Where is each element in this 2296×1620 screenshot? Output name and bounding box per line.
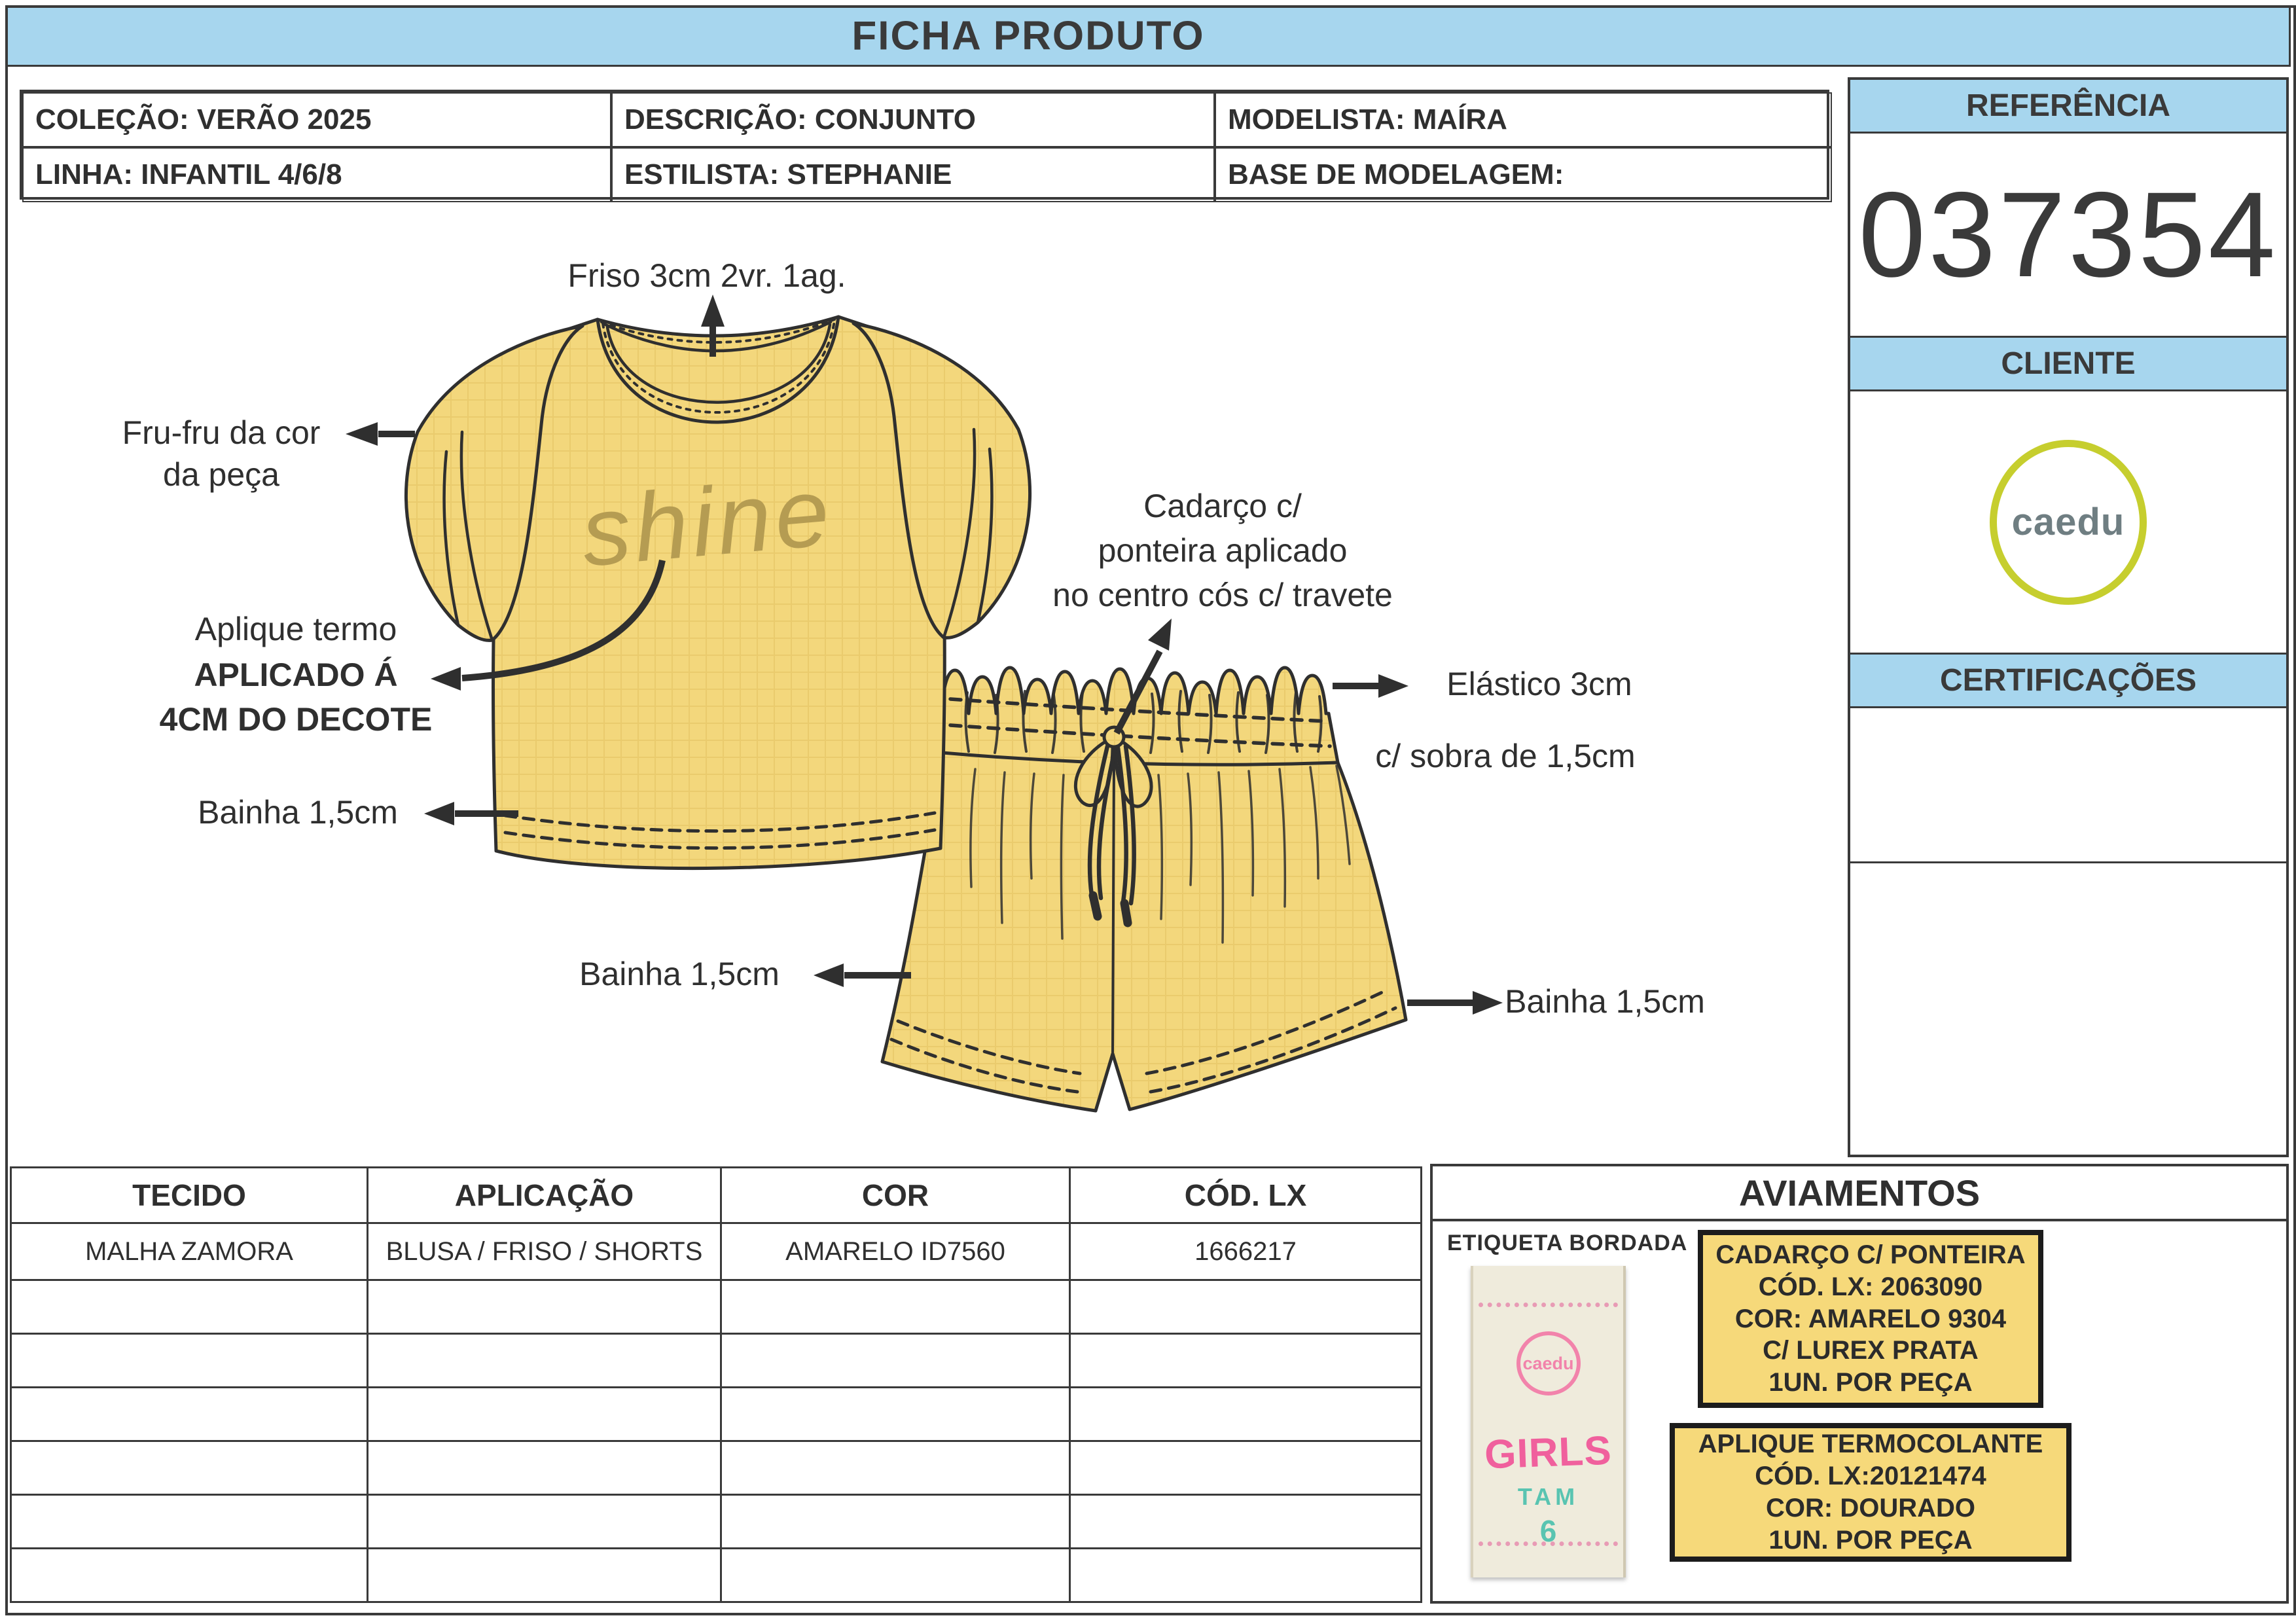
annotation-bainha-shorts-dir: Bainha 1,5cm xyxy=(1505,983,1705,1020)
annotation-aplique-line3: 4CM DO DECOTE xyxy=(160,701,433,738)
trim2-line: APLIQUE TERMOCOLANTE xyxy=(1698,1428,2043,1460)
shorts-body xyxy=(882,753,1406,1111)
cell-codlx: 1666217 xyxy=(1070,1223,1422,1280)
annotation-aplique-line1: Aplique termo xyxy=(195,611,397,647)
brand-tag: caedu GIRLS TAM 6 xyxy=(1471,1266,1626,1577)
cliente-box: caedu xyxy=(1850,391,2286,655)
annotation-friso: Friso 3cm 2vr. 1ag. xyxy=(567,257,846,294)
table-row: MALHA ZAMORA BLUSA / FRISO / SHORTS AMAR… xyxy=(11,1223,1422,1280)
annotation-aplique-line2: APLICADO Á xyxy=(194,657,397,693)
tag-dotted-line xyxy=(1479,1303,1618,1307)
cell-cor xyxy=(721,1495,1070,1549)
trim1-line: CÓD. LX: 2063090 xyxy=(1759,1271,1982,1303)
table-row xyxy=(11,1495,1422,1549)
aplique-arrowhead-icon xyxy=(431,667,461,691)
trim2-line: 1UN. POR PEÇA xyxy=(1768,1524,1972,1557)
cell-tecido xyxy=(11,1441,368,1495)
col-header-aplicacao: APLICAÇÃO xyxy=(368,1168,721,1223)
info-colecao: COLEÇÃO: VERÃO 2025 xyxy=(22,92,611,147)
cell-aplicacao xyxy=(368,1441,721,1495)
cell-aplicacao xyxy=(368,1549,721,1602)
caedu-logo-text: caedu xyxy=(2012,500,2125,544)
shine-graphic: shine xyxy=(577,458,837,587)
caedu-logo: caedu xyxy=(1990,440,2147,605)
frufru-arrowhead-icon xyxy=(346,422,378,446)
shorts-center-seam xyxy=(1113,763,1114,1053)
aviamentos-panel: AVIAMENTOS ETIQUETA BORDADA caedu GIRLS … xyxy=(1430,1164,2289,1604)
info-modelista: MODELISTA: MAÍRA xyxy=(1215,92,1832,147)
cell-tecido xyxy=(11,1549,368,1602)
bainha-dir-arrowhead-icon xyxy=(1473,991,1503,1015)
cell-codlx xyxy=(1070,1388,1422,1441)
tag-caedu-text: caedu xyxy=(1522,1354,1573,1374)
cell-aplicacao xyxy=(368,1280,721,1334)
cell-tecido xyxy=(11,1334,368,1388)
annotation-elastico-line2: c/ sobra de 1,5cm xyxy=(1375,738,1635,774)
info-table: COLEÇÃO: VERÃO 2025 DESCRIÇÃO: CONJUNTO … xyxy=(20,90,1829,200)
table-row xyxy=(11,1441,1422,1495)
certificacoes-header: CERTIFICAÇÕES xyxy=(1850,655,2286,708)
annotation-cadarco-line2: ponteira aplicado xyxy=(1098,532,1348,569)
cell-tecido xyxy=(11,1388,368,1441)
ficha-produto-sheet: shine Friso 3cm 2vr. 1ag. Fru-fru da cor… xyxy=(0,0,2296,1620)
annotation-cadarco-line3: no centro cós c/ travete xyxy=(1052,577,1393,613)
cell-tecido xyxy=(11,1495,368,1549)
trim2-line: CÓD. LX:20121474 xyxy=(1755,1460,1986,1492)
materials-table: TECIDO APLICAÇÃO COR CÓD. LX MALHA ZAMOR… xyxy=(10,1166,1422,1603)
cell-cor xyxy=(721,1334,1070,1388)
cell-cor xyxy=(721,1280,1070,1334)
tag-girls-text: GIRLS xyxy=(1473,1427,1624,1479)
etiqueta-bordada-label: ETIQUETA BORDADA xyxy=(1447,1231,1687,1256)
trim2-line: COR: DOURADO xyxy=(1766,1492,1975,1524)
col-header-codlx: CÓD. LX xyxy=(1070,1168,1422,1223)
tshirt-body xyxy=(493,317,945,869)
friso-arrowhead-icon xyxy=(701,295,725,327)
bainha-esq-arrowhead-icon xyxy=(814,963,844,987)
cell-cor xyxy=(721,1549,1070,1602)
cell-aplicacao xyxy=(368,1388,721,1441)
cell-codlx xyxy=(1070,1495,1422,1549)
referencia-header: REFERÊNCIA xyxy=(1850,80,2286,134)
table-row xyxy=(11,1388,1422,1441)
cell-codlx xyxy=(1070,1334,1422,1388)
cell-codlx xyxy=(1070,1549,1422,1602)
cell-codlx xyxy=(1070,1441,1422,1495)
tag-tam-text: TAM xyxy=(1473,1483,1623,1511)
elastico-arrowhead-icon xyxy=(1378,674,1408,698)
cell-tecido xyxy=(11,1280,368,1334)
cliente-header: CLIENTE xyxy=(1850,338,2286,391)
sidebar: REFERÊNCIA 037354 CLIENTE caedu CERTIFIC… xyxy=(1848,77,2289,1157)
cadarco-arrowhead-icon xyxy=(1148,619,1172,651)
annotation-elastico-line1: Elástico 3cm xyxy=(1446,666,1632,702)
shorts-drawing xyxy=(882,668,1406,1111)
trim-box-cadarco: CADARÇO C/ PONTEIRA CÓD. LX: 2063090 COR… xyxy=(1698,1230,2043,1408)
trim1-line: CADARÇO C/ PONTEIRA xyxy=(1715,1239,2025,1271)
col-header-cor: COR xyxy=(721,1168,1070,1223)
col-header-tecido: TECIDO xyxy=(11,1168,368,1223)
trim1-line: C/ LUREX PRATA xyxy=(1763,1335,1979,1367)
header-bar: FICHA PRODUTO xyxy=(5,5,2291,67)
table-row xyxy=(11,1334,1422,1388)
certificacoes-box-1 xyxy=(1850,708,2286,863)
tag-caedu-logo: caedu xyxy=(1516,1331,1581,1395)
info-estilista: ESTILISTA: STEPHANIE xyxy=(611,147,1215,202)
aviamentos-title: AVIAMENTOS xyxy=(1433,1166,2286,1221)
tag-dotted-line xyxy=(1479,1541,1618,1546)
cell-cor: AMARELO ID7560 xyxy=(721,1223,1070,1280)
annotation-cadarco-line1: Cadarço c/ xyxy=(1143,488,1302,524)
tshirt-drawing xyxy=(406,317,1030,869)
annotation-bainha-blusa: Bainha 1,5cm xyxy=(198,794,398,831)
certificacoes-box-2 xyxy=(1850,863,2286,1155)
materials-header-row: TECIDO APLICAÇÃO COR CÓD. LX xyxy=(11,1168,1422,1223)
info-base-modelagem: BASE DE MODELAGEM: xyxy=(1215,147,1832,202)
table-row xyxy=(11,1549,1422,1602)
annotation-frufru-line1: Fru-fru da cor xyxy=(122,414,321,451)
shorts-waist-ruffle xyxy=(941,668,1338,766)
cell-aplicacao xyxy=(368,1495,721,1549)
cell-tecido: MALHA ZAMORA xyxy=(11,1223,368,1280)
trim1-line: COR: AMARELO 9304 xyxy=(1735,1303,2006,1335)
cell-aplicacao xyxy=(368,1334,721,1388)
bainha-blusa-arrowhead-icon xyxy=(424,802,454,825)
cell-aplicacao: BLUSA / FRISO / SHORTS xyxy=(368,1223,721,1280)
page-title: FICHA PRODUTO xyxy=(852,13,1204,60)
trim-box-aplique: APLIQUE TERMOCOLANTE CÓD. LX:20121474 CO… xyxy=(1670,1423,2072,1562)
cell-codlx xyxy=(1070,1280,1422,1334)
cell-cor xyxy=(721,1441,1070,1495)
referencia-value: 037354 xyxy=(1850,134,2286,338)
info-descricao: DESCRIÇÃO: CONJUNTO xyxy=(611,92,1215,147)
info-linha: LINHA: INFANTIL 4/6/8 xyxy=(22,147,611,202)
table-row xyxy=(11,1280,1422,1334)
annotation-bainha-shorts-esq: Bainha 1,5cm xyxy=(579,956,780,992)
cell-cor xyxy=(721,1388,1070,1441)
annotation-frufru-line2: da peça xyxy=(163,456,279,493)
trim1-line: 1UN. POR PEÇA xyxy=(1768,1367,1972,1399)
